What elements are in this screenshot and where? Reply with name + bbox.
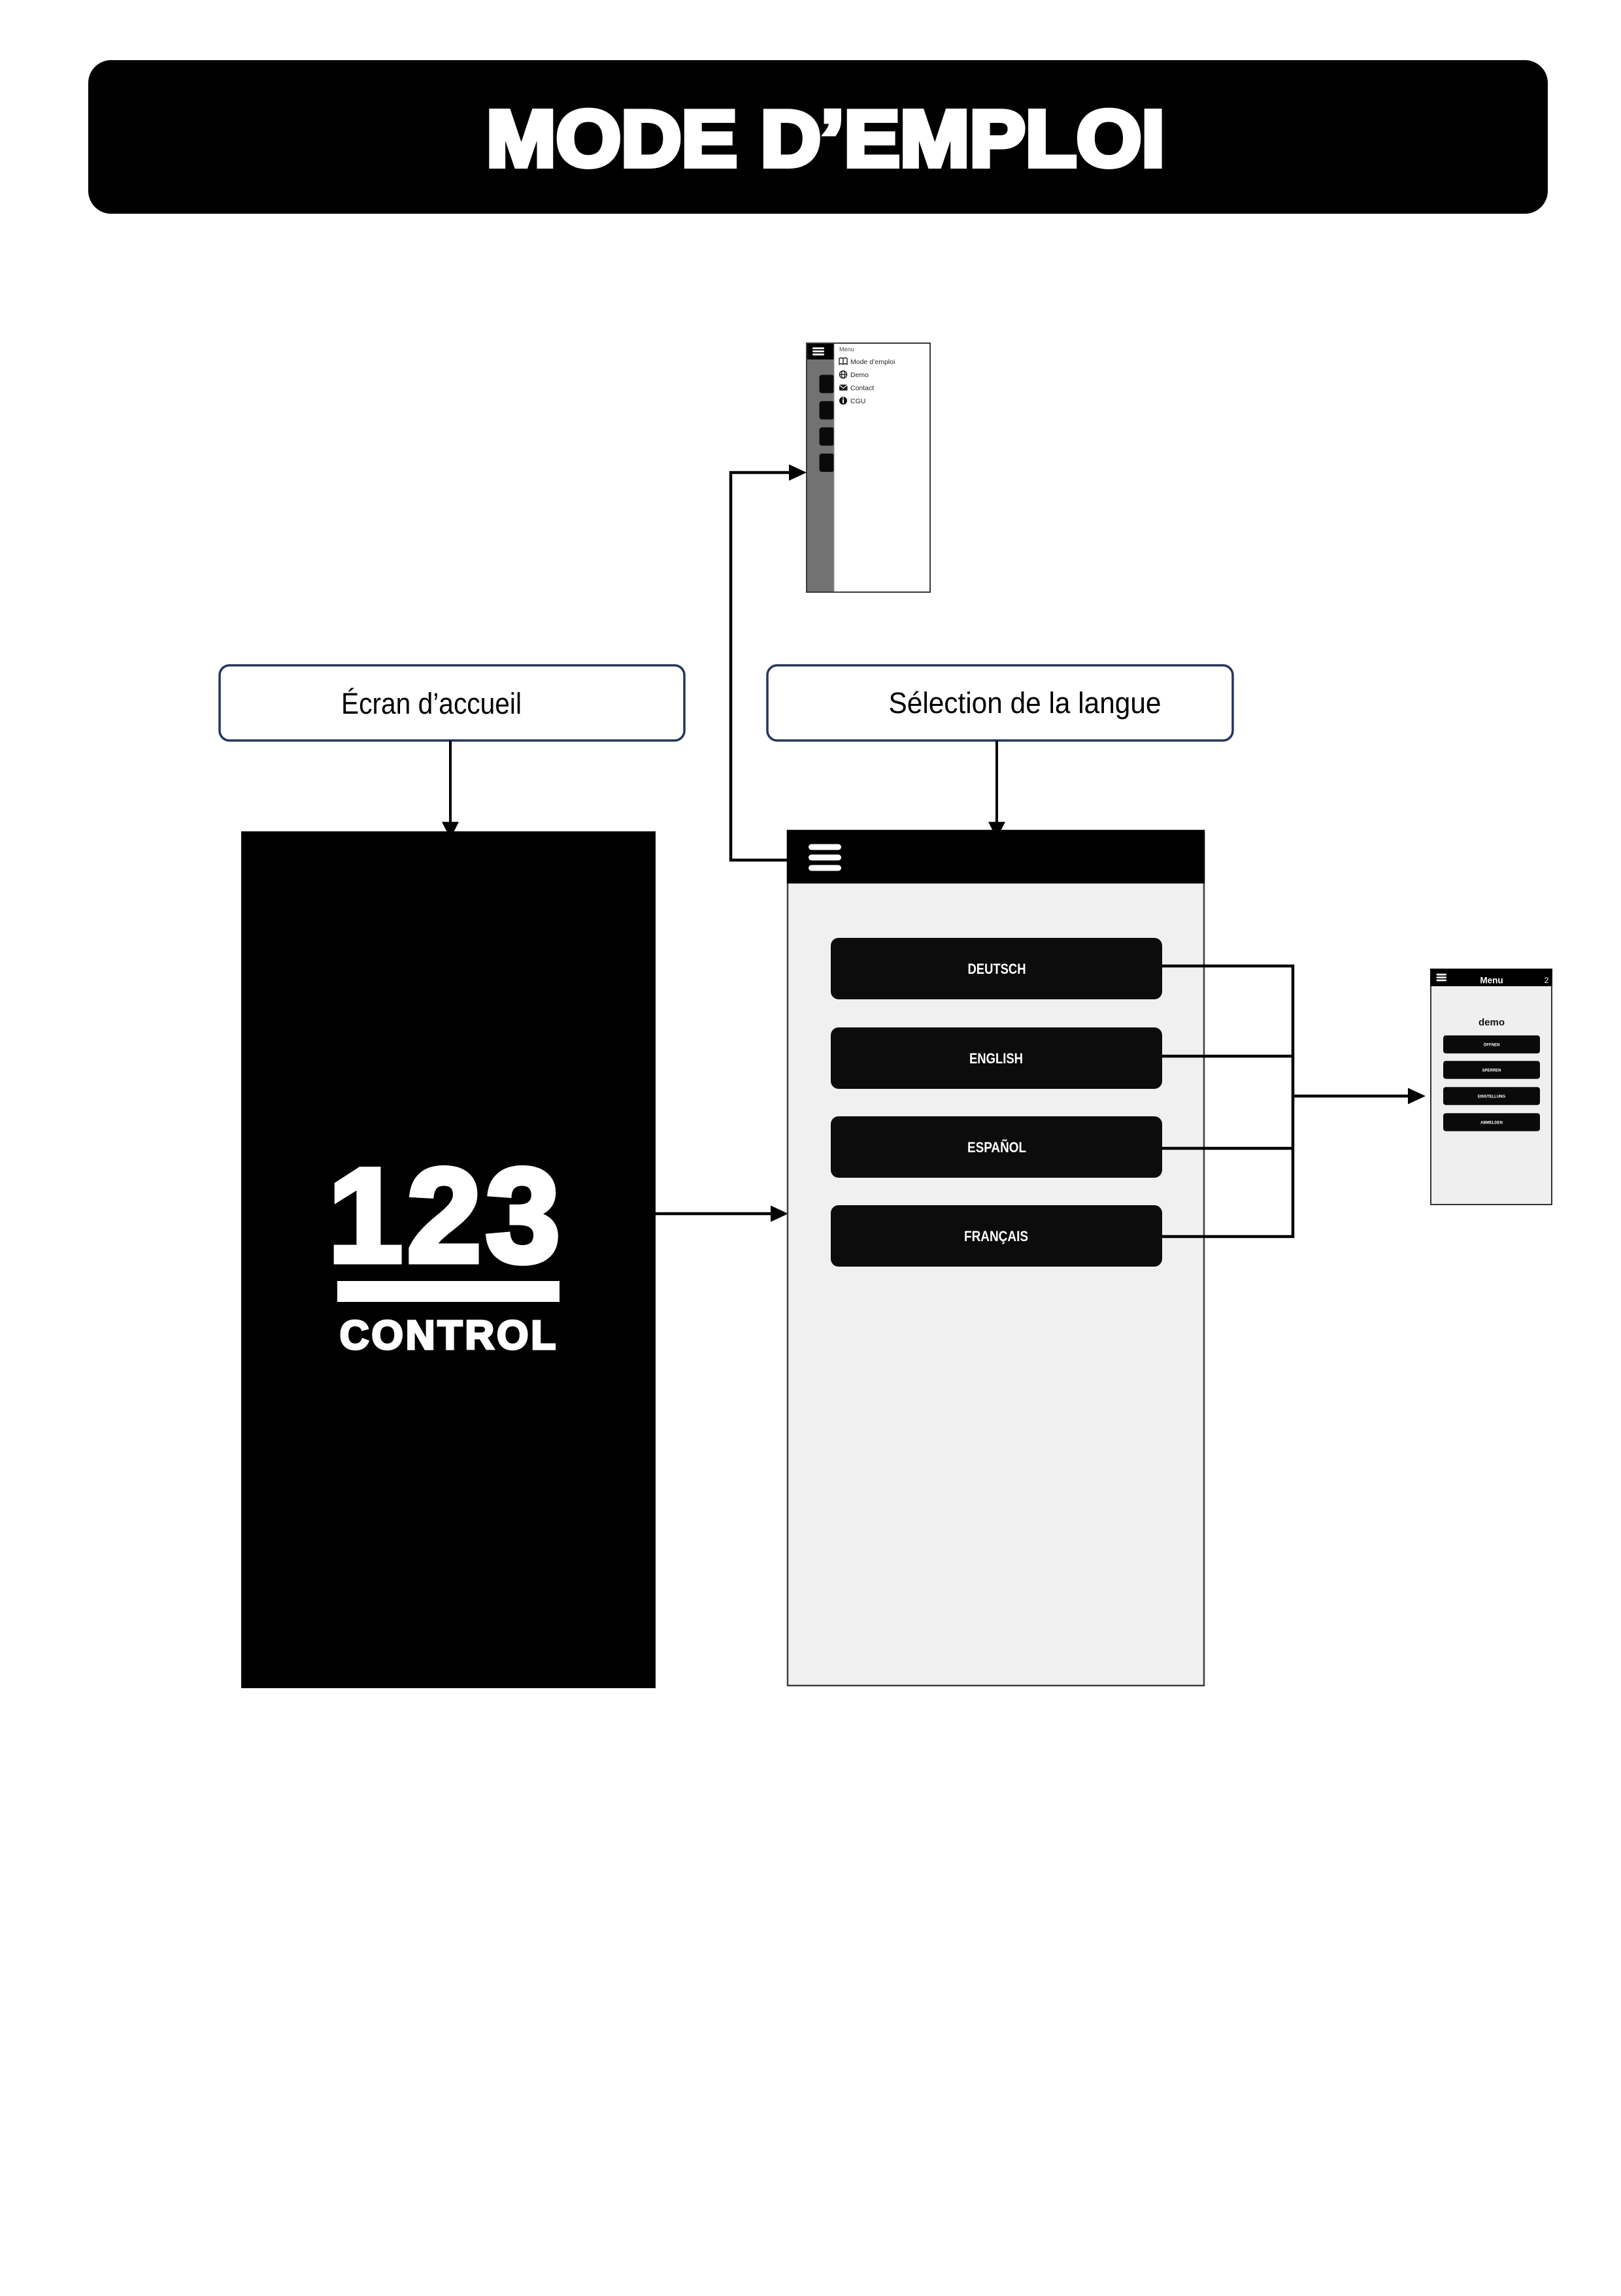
- svg-text:demo: demo: [1479, 1017, 1505, 1028]
- svg-text:Menu: Menu: [839, 346, 854, 353]
- svg-text:SPERREN: SPERREN: [1482, 1069, 1501, 1073]
- svg-text:2: 2: [1545, 976, 1549, 985]
- svg-text:CGU: CGU: [850, 397, 865, 405]
- svg-text:Sélection de la langue: Sélection de la langue: [889, 686, 1161, 720]
- svg-text:DEUTSCH: DEUTSCH: [968, 961, 1026, 977]
- svg-text:CONTROL: CONTROL: [340, 1313, 559, 1358]
- svg-text:ENGLISH: ENGLISH: [969, 1050, 1023, 1067]
- svg-text:Menu: Menu: [1480, 976, 1503, 986]
- svg-text:ESPAÑOL: ESPAÑOL: [967, 1139, 1026, 1156]
- svg-text:ABMELDEN: ABMELDEN: [1480, 1122, 1503, 1125]
- svg-text:FRANÇAIS: FRANÇAIS: [964, 1228, 1028, 1244]
- svg-text:Demo: Demo: [850, 371, 869, 379]
- svg-text:Contact: Contact: [850, 384, 874, 392]
- svg-text:Écran d’accueil: Écran d’accueil: [341, 687, 522, 720]
- svg-text:MODE D’EMPLOI: MODE D’EMPLOI: [486, 94, 1165, 183]
- svg-text:ÖFFNEN: ÖFFNEN: [1484, 1043, 1500, 1048]
- svg-text:123: 123: [328, 1141, 564, 1290]
- svg-text:Mode d’emploi: Mode d’emploi: [850, 358, 895, 366]
- svg-text:EINSTELLUNG: EINSTELLUNG: [1478, 1095, 1506, 1099]
